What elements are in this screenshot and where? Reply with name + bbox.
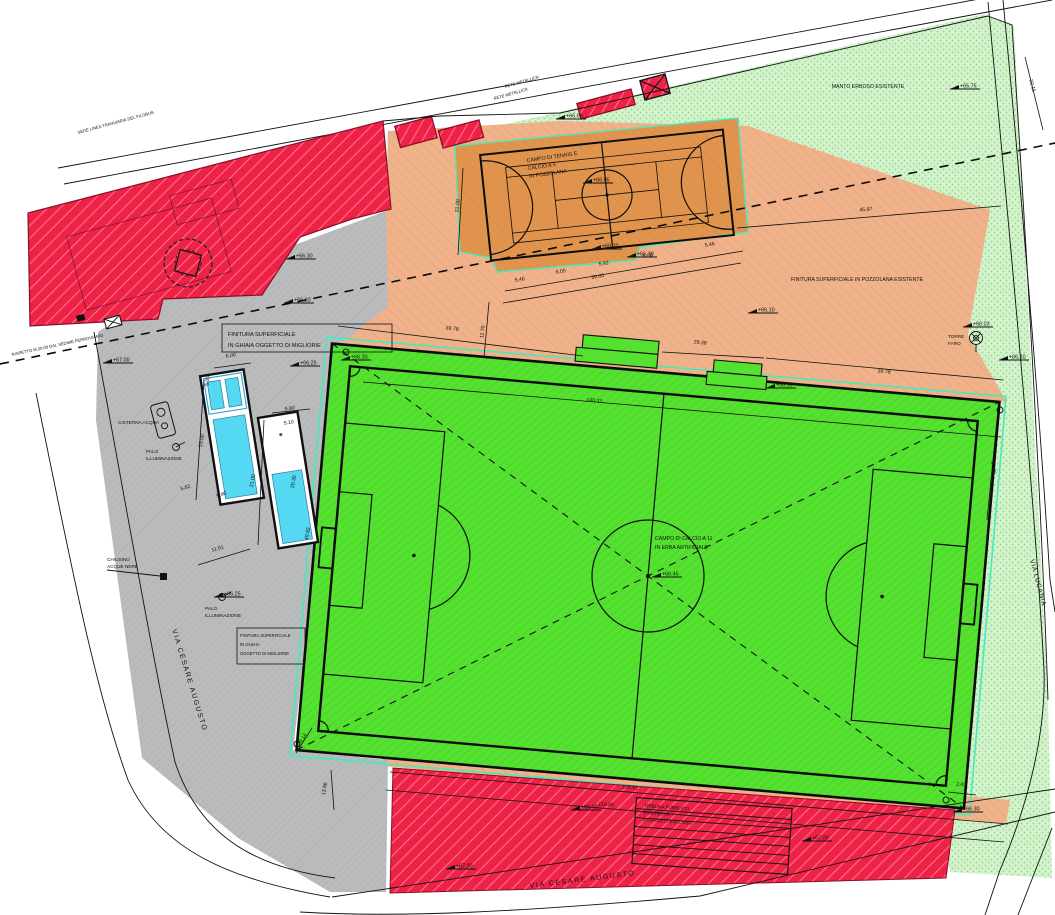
elevation-value: +66.10	[1009, 355, 1026, 361]
ghiaia-box2-line3: OGGETTO DI MIGLIORIE	[240, 651, 289, 656]
svg-text:IN ERBA ARTIFICIALE: IN ERBA ARTIFICIALE	[655, 545, 708, 551]
svg-text:CHIUSINO: CHIUSINO	[107, 557, 130, 562]
ghiaia-box-1: FINITURA SUPERFICIALE IN GHIAIA OGGETTO …	[222, 324, 392, 352]
svg-text:ILLUMINAZIONE: ILLUMINAZIONE	[146, 456, 182, 461]
svg-text:ILLUMINAZIONE: ILLUMINAZIONE	[205, 613, 241, 618]
elevation-value: +66.25	[224, 592, 241, 598]
dimension-label: 2.43	[956, 782, 967, 789]
dimension-label: 5.00	[204, 375, 211, 386]
elevation-value: +67.00	[456, 864, 473, 870]
elevation-value: +66.30	[776, 383, 793, 389]
elevation-value: +66.03	[973, 322, 990, 328]
pozzolana-label: FINITURA SUPERFICIALE IN POZZOLANA ESIST…	[791, 277, 924, 283]
ghiaia-box-2: FINITURA SUPERFICIALE IN GHIAIA OGGETTO …	[237, 628, 305, 664]
site-plan-drawing: TRIBUNA PUBBLICO ESISTENTE INTERDETTA AL…	[0, 0, 1055, 915]
elevation-value: +66.20	[294, 298, 311, 304]
elevation-value: +66.30	[296, 254, 313, 260]
dimension-label: 45.97	[859, 206, 873, 213]
elevation-value: +66.10	[758, 308, 775, 314]
chiusino-symbol	[160, 573, 167, 580]
elevation-value: +66.00	[581, 805, 598, 811]
svg-text:FARO: FARO	[948, 341, 961, 346]
elevation-value: +67.00	[812, 836, 829, 842]
elevation-value: +66.20	[602, 244, 619, 250]
elevation-value: +67.00	[113, 358, 130, 364]
elevation-value: +65.75	[960, 84, 977, 90]
elevation-value: +66.45	[662, 572, 679, 578]
svg-text:PALO: PALO	[205, 606, 218, 611]
svg-text:CAMPO DI CALCIO A 11: CAMPO DI CALCIO A 11	[655, 536, 713, 542]
site-plan-canvas: { "zones": { "manto_erboso_label": "MANT…	[0, 0, 1055, 915]
ghiaia-box1-line2: IN GHIAIA OGGETTO DI MIGLIORIE	[228, 343, 321, 349]
cisterna-label: CISTERNA ACQUA	[118, 420, 160, 425]
ghiaia-box2-line2: IN GHIAIA	[240, 642, 260, 647]
elevation-value: +66.30	[351, 355, 368, 361]
elevation-value: +66.05	[593, 178, 610, 184]
elevation-value: +66.25	[300, 361, 317, 367]
svg-text:ACQUE NERE: ACQUE NERE	[107, 564, 138, 569]
ghiaia-box2-line1: FINITURA SUPERFICIALE	[240, 633, 291, 638]
svg-text:TORRE: TORRE	[948, 334, 964, 339]
bench-north-2	[706, 359, 768, 389]
svg-text:PALO: PALO	[146, 449, 159, 454]
elevation-value: +66.00	[566, 114, 583, 120]
elevation-value: +66.10	[637, 252, 654, 258]
elevation-value: +66.30	[963, 807, 980, 813]
manto-erboso-label: MANTO ERBOSO ESISTENTE	[832, 84, 905, 90]
ghiaia-box1-line1: FINITURA SUPERFICIALE	[228, 332, 296, 338]
soccer-field	[290, 337, 1006, 815]
